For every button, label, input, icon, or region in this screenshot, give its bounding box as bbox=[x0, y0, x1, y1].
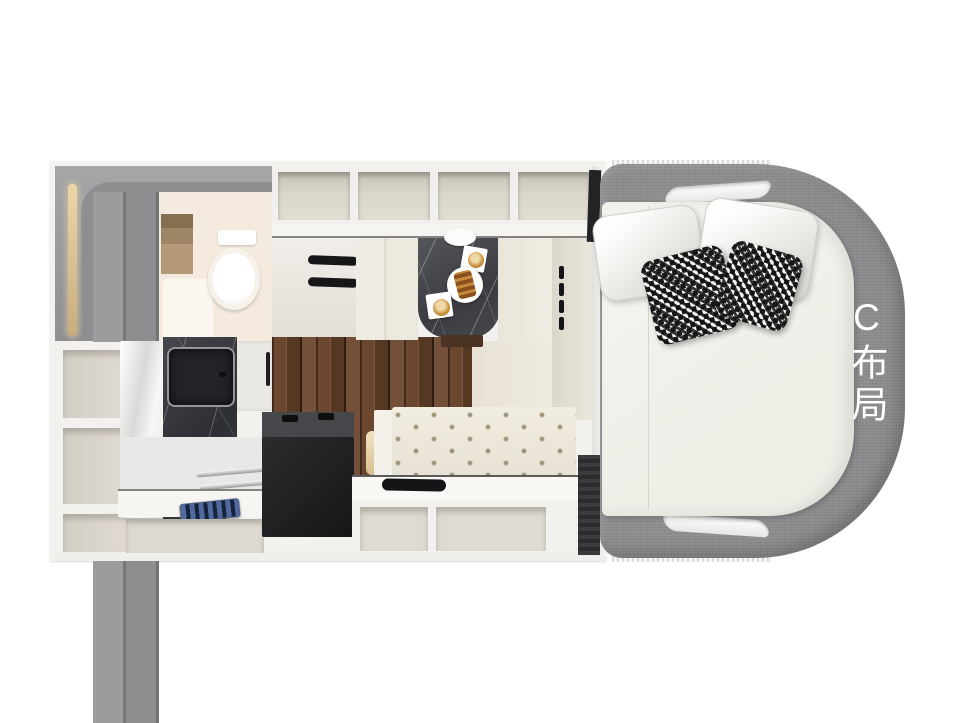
hinge bbox=[282, 415, 298, 422]
towel-bar bbox=[266, 352, 270, 386]
rv-floorplan-render: C布局 bbox=[0, 0, 964, 723]
wardrobe-handle bbox=[559, 300, 564, 313]
storage-compartment bbox=[360, 507, 428, 551]
layout-label: C布局 bbox=[836, 292, 896, 432]
overhead-cubby bbox=[438, 172, 510, 220]
cabinet-sill bbox=[272, 224, 592, 236]
sofa-armrest bbox=[374, 410, 394, 476]
overhead-cubby bbox=[518, 172, 590, 220]
wardrobe-handle bbox=[559, 266, 564, 279]
storage-strap bbox=[308, 277, 358, 288]
wardrobe-handle bbox=[559, 283, 564, 296]
table-pedestal bbox=[441, 335, 483, 347]
coffee-cup bbox=[431, 297, 452, 318]
refrigerator-top bbox=[262, 412, 354, 440]
microwave-handle bbox=[219, 372, 226, 377]
toilet-bowl bbox=[208, 248, 260, 310]
shower-tray bbox=[163, 279, 213, 341]
microwave-oven bbox=[167, 347, 235, 407]
toilet-tank bbox=[218, 230, 256, 245]
overhead-cubby bbox=[278, 172, 350, 220]
storage-strap bbox=[308, 255, 358, 266]
storage-compartment bbox=[436, 507, 546, 551]
dining-bench-right bbox=[498, 238, 556, 342]
wardrobe-handle bbox=[559, 317, 564, 330]
wardrobe bbox=[552, 238, 592, 420]
bottom-wall-sill bbox=[55, 553, 606, 561]
bench-side-panel bbox=[272, 238, 356, 337]
plate bbox=[444, 228, 476, 246]
bathroom-shelf bbox=[161, 214, 193, 274]
hinge bbox=[318, 413, 334, 420]
led-light-strip bbox=[68, 184, 77, 336]
dining-bench-left bbox=[356, 238, 418, 340]
serving-tray bbox=[382, 478, 446, 491]
tufted-sofa-backrest bbox=[392, 407, 576, 477]
under-counter-storage bbox=[126, 519, 264, 555]
bed-step-ladder bbox=[578, 455, 600, 555]
overhead-cubby bbox=[358, 172, 430, 220]
refrigerator bbox=[262, 437, 354, 537]
